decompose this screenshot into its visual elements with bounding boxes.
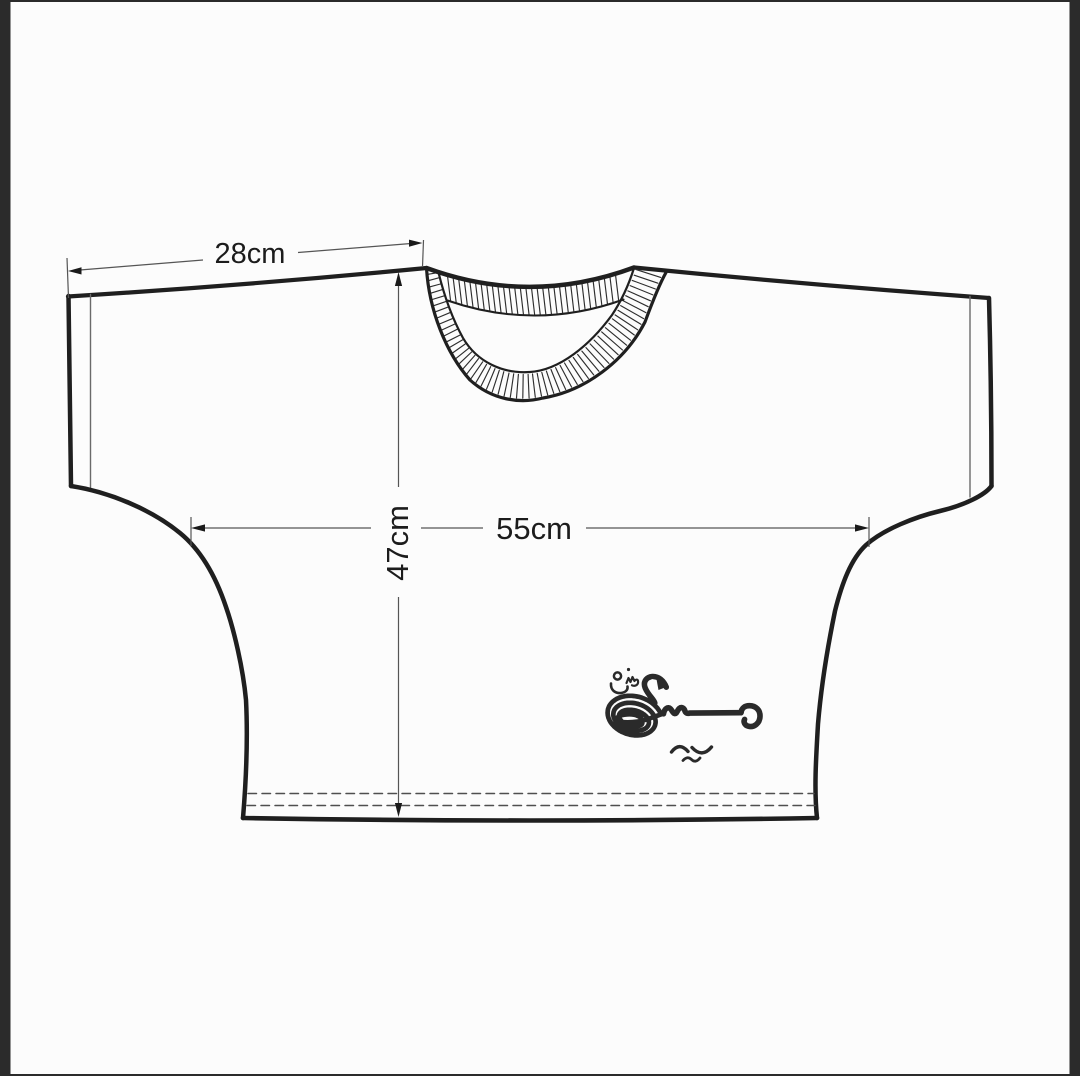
svg-text:28cm: 28cm	[215, 238, 286, 270]
svg-text:55cm: 55cm	[496, 511, 572, 546]
svg-text:47cm: 47cm	[380, 505, 415, 581]
